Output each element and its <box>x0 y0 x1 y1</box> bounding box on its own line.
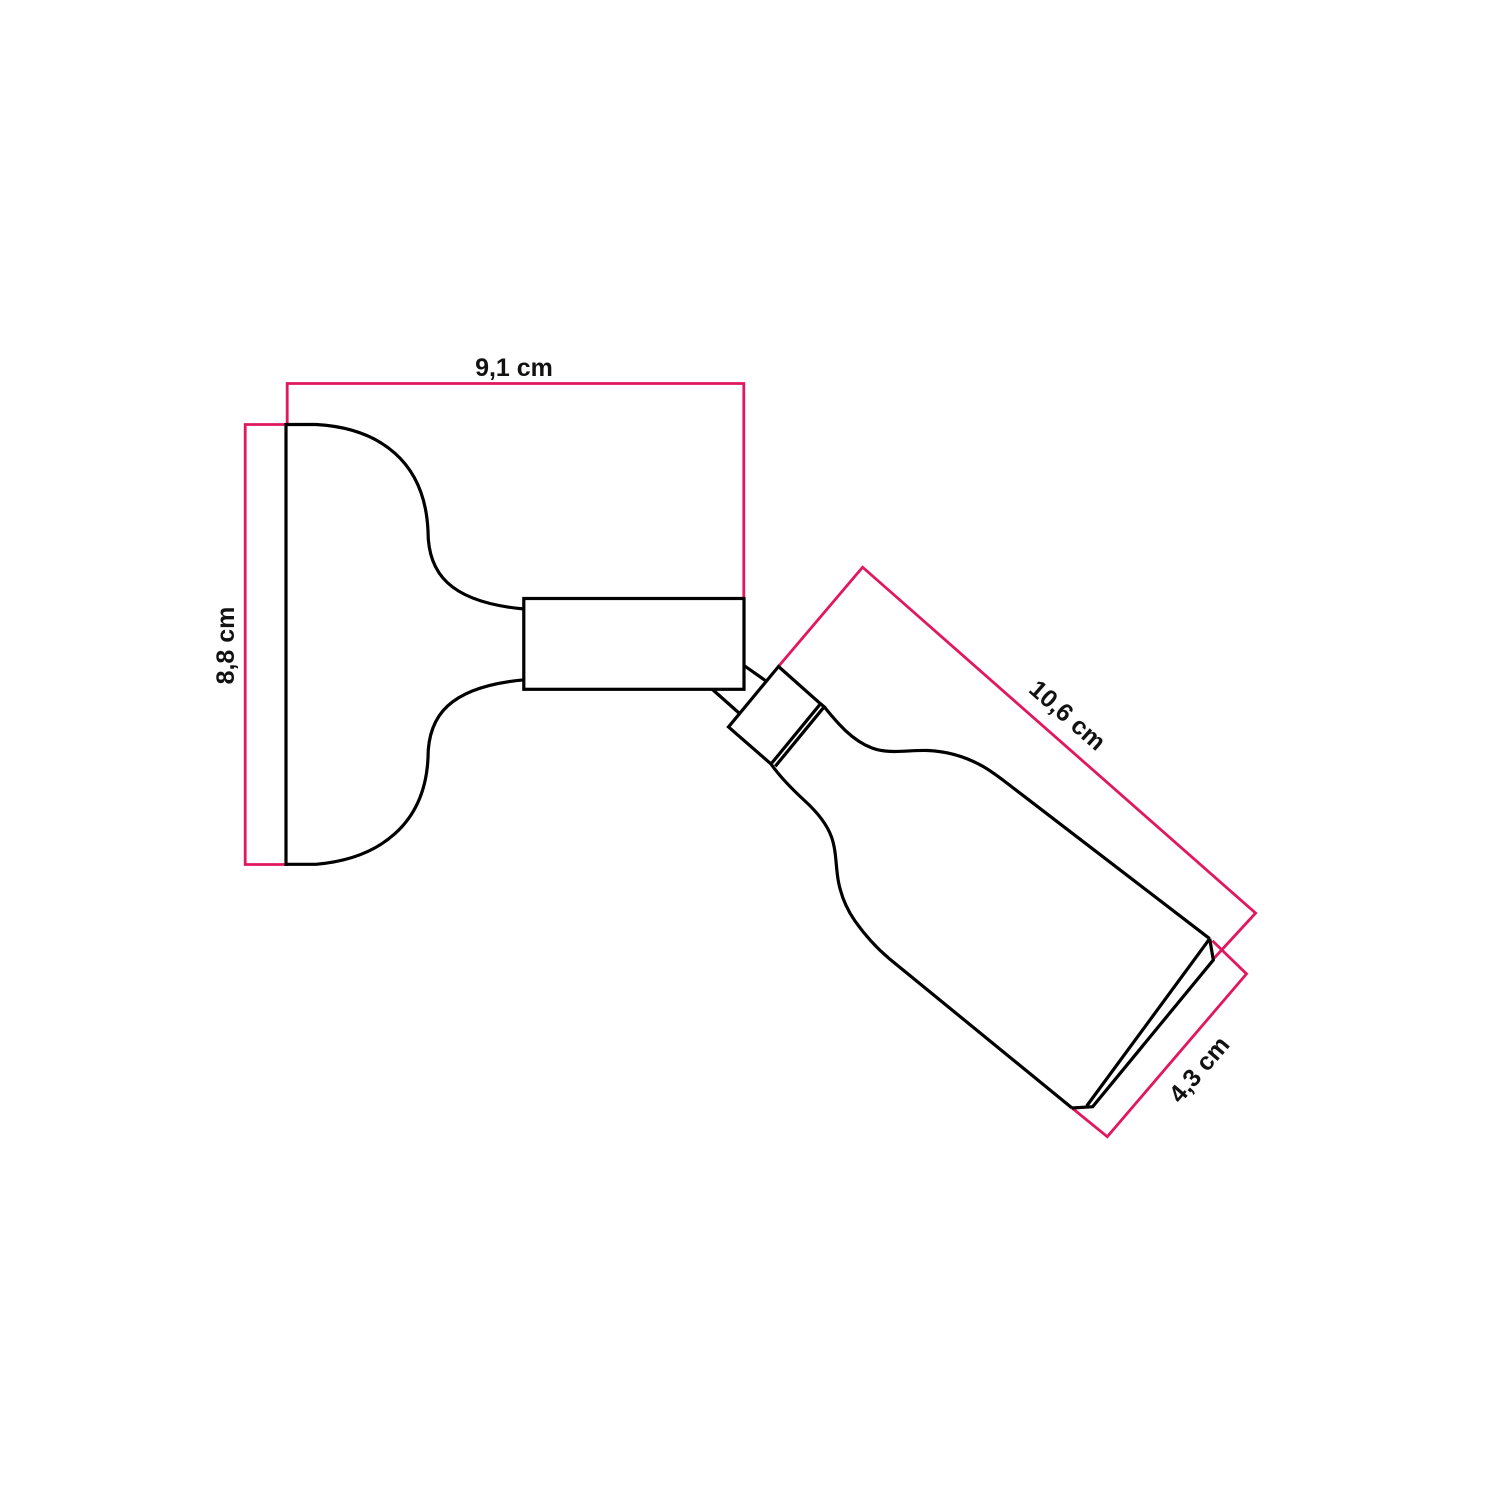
svg-text:8,8 cm: 8,8 cm <box>212 607 240 685</box>
svg-text:9,1 cm: 9,1 cm <box>475 354 553 382</box>
